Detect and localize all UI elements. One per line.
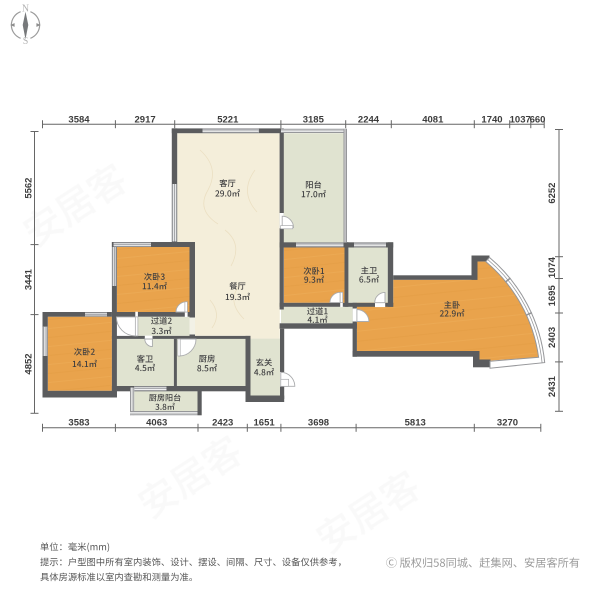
svg-text:N: N (22, 4, 29, 15)
svg-text:3584: 3584 (68, 114, 90, 125)
svg-text:1695: 1695 (547, 285, 558, 307)
svg-text:660: 660 (530, 114, 546, 125)
svg-text:2244: 2244 (358, 114, 380, 125)
svg-text:1037: 1037 (510, 114, 531, 125)
svg-text:3270: 3270 (497, 418, 518, 429)
svg-text:2403: 2403 (547, 327, 558, 348)
svg-text:5562: 5562 (24, 178, 35, 199)
svg-text:S: S (23, 36, 29, 47)
svg-text:2423: 2423 (212, 418, 233, 429)
svg-text:1651: 1651 (254, 418, 276, 429)
svg-text:2431: 2431 (547, 375, 558, 397)
svg-text:4063: 4063 (146, 418, 167, 429)
svg-text:6252: 6252 (547, 183, 558, 204)
svg-text:3441: 3441 (24, 268, 35, 290)
svg-text:4852: 4852 (24, 353, 35, 374)
svg-text:5221: 5221 (217, 114, 239, 125)
svg-text:4081: 4081 (422, 114, 444, 125)
svg-text:1740: 1740 (481, 114, 502, 125)
svg-text:5813: 5813 (405, 418, 426, 429)
svg-text:1074: 1074 (547, 256, 558, 278)
svg-text:3185: 3185 (303, 114, 325, 125)
svg-text:2917: 2917 (135, 114, 156, 125)
svg-text:3583: 3583 (68, 418, 89, 429)
svg-text:3698: 3698 (308, 418, 329, 429)
